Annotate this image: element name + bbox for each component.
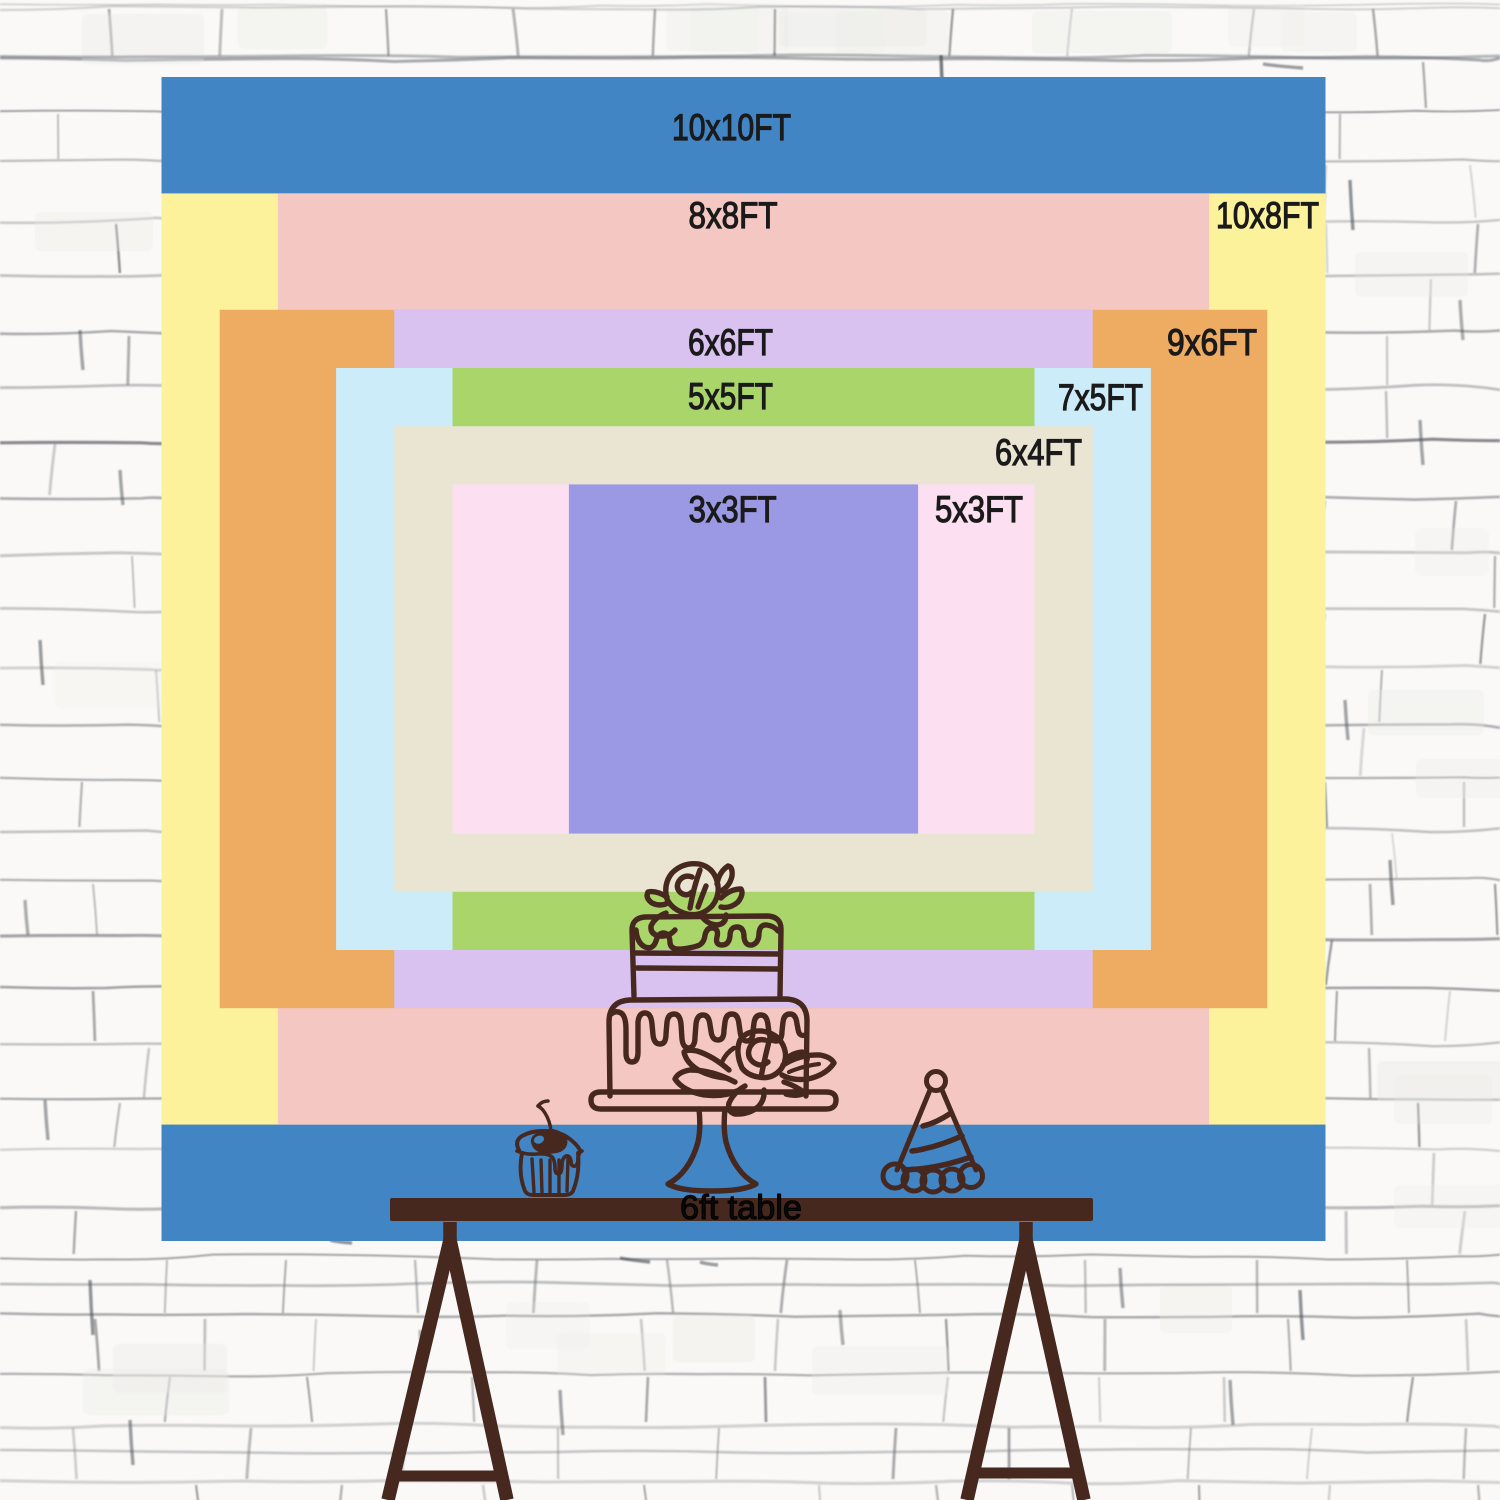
svg-text:5x5FT: 5x5FT xyxy=(688,376,773,417)
svg-text:10x10FT: 10x10FT xyxy=(672,107,791,148)
svg-text:6x6FT: 6x6FT xyxy=(688,322,773,363)
svg-text:6x4FT: 6x4FT xyxy=(995,432,1082,473)
svg-text:3x3FT: 3x3FT xyxy=(689,489,777,530)
svg-text:9x6FT: 9x6FT xyxy=(1167,322,1257,363)
svg-text:10x8FT: 10x8FT xyxy=(1216,195,1319,236)
svg-text:6ft table: 6ft table xyxy=(680,1189,802,1227)
svg-text:8x8FT: 8x8FT xyxy=(689,195,778,236)
svg-text:7x5FT: 7x5FT xyxy=(1058,377,1143,418)
svg-text:5x3FT: 5x3FT xyxy=(935,489,1023,530)
